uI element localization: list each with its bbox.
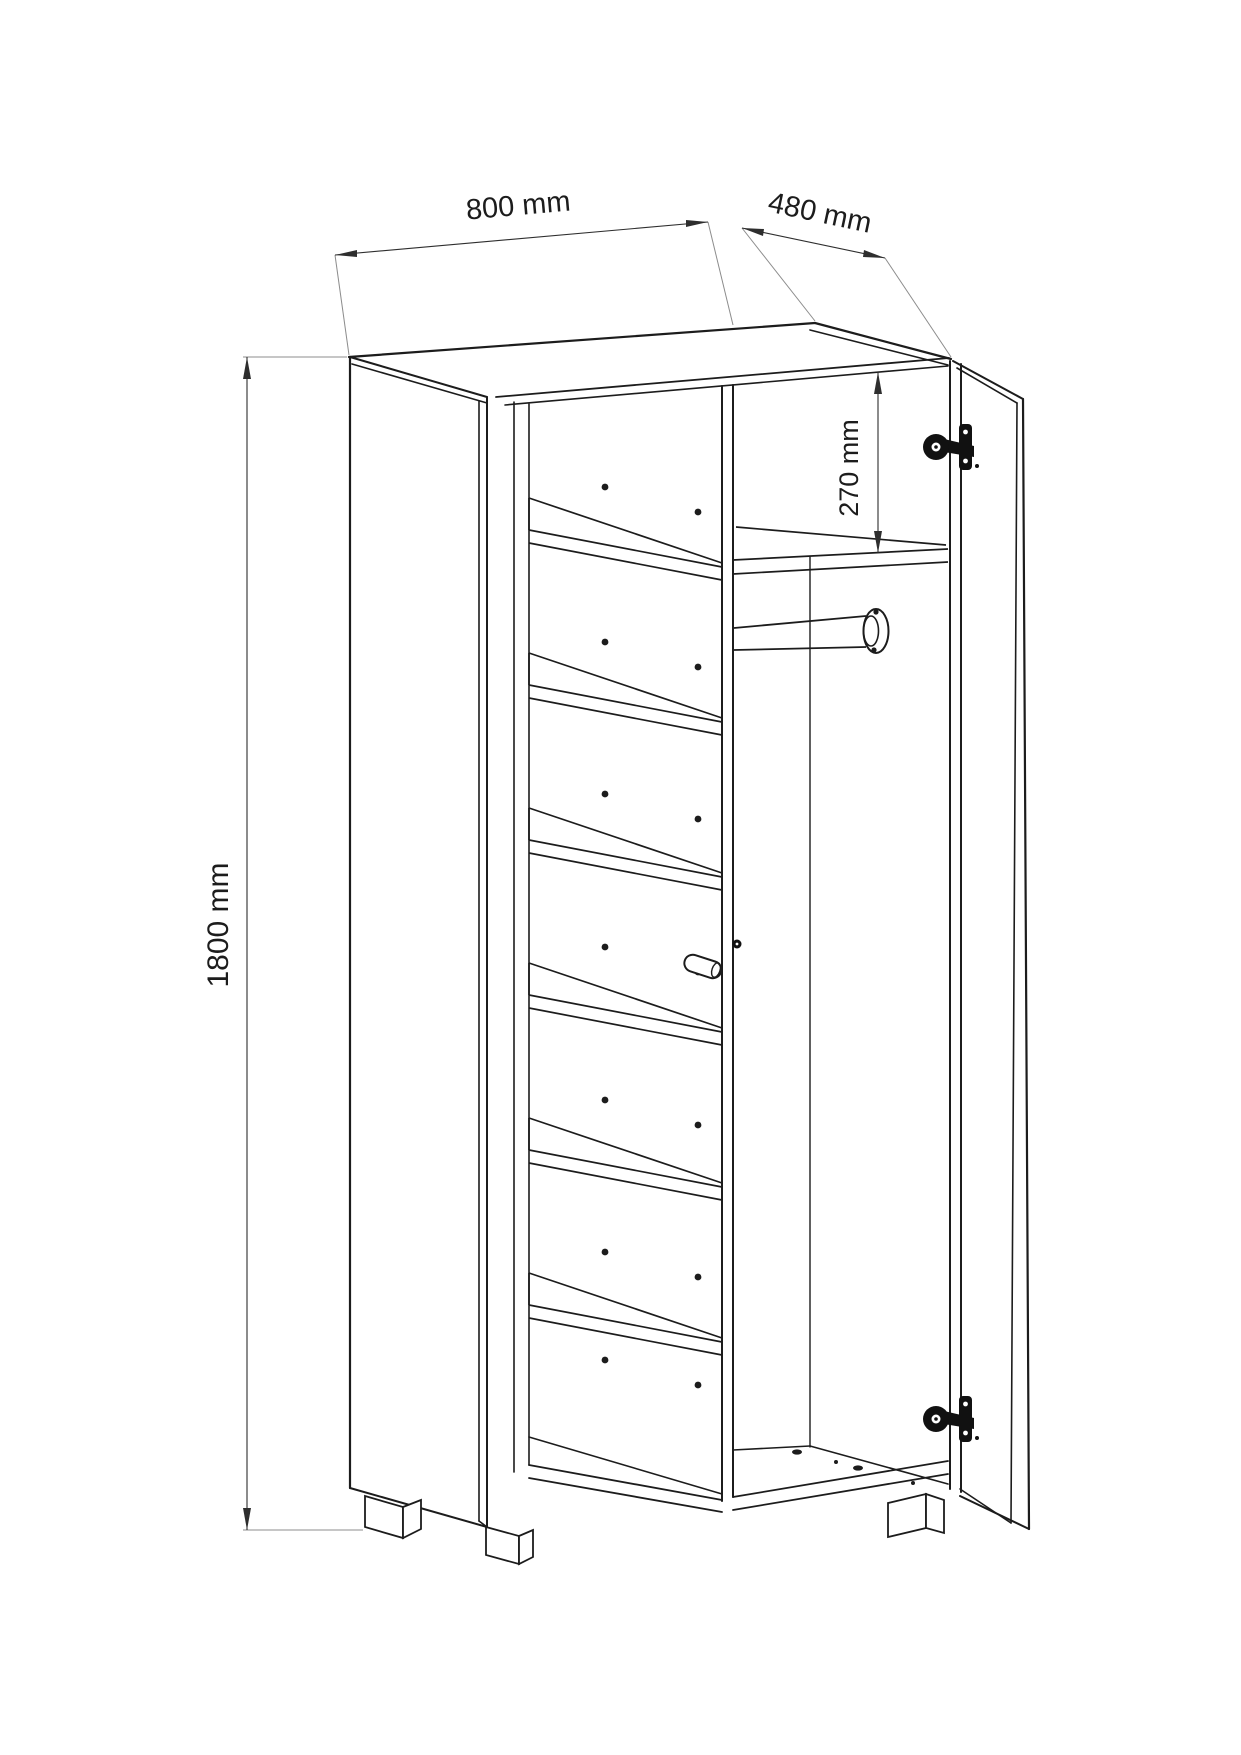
- dimension-top-compartment-label: 270 mm: [834, 419, 864, 517]
- floor-fittings: [792, 1449, 915, 1485]
- clothes-rail: [734, 609, 889, 653]
- foot: [486, 1527, 533, 1564]
- dimension-depth: 480 mm: [742, 187, 885, 258]
- dimension-width-label: 800 mm: [465, 186, 572, 227]
- dimension-height-label: 1800 mm: [202, 862, 235, 987]
- shelf: [529, 1273, 722, 1355]
- right-door: [953, 361, 1029, 1529]
- technical-drawing-page: 800 mm 480 mm 1800 mm 270 mm: [0, 0, 1241, 1755]
- carcass: [349, 323, 961, 1512]
- shelf: [529, 808, 722, 890]
- shelves-left: [529, 498, 722, 1355]
- top-panel-back-edge: [349, 323, 815, 357]
- shelf-pin-holes: [602, 484, 702, 1389]
- wardrobe-drawing: 800 mm 480 mm 1800 mm 270 mm: [0, 0, 1241, 1755]
- dimension-depth-label: 480 mm: [765, 187, 874, 240]
- rail-flange: [864, 609, 889, 653]
- shelf: [529, 653, 722, 735]
- shelf: [529, 498, 722, 580]
- shelf: [529, 1118, 722, 1200]
- top-panel-right-edge: [815, 323, 951, 359]
- dimension-width: 800 mm: [335, 186, 708, 257]
- foot: [365, 1496, 421, 1538]
- dimension-height: 1800 mm: [202, 357, 251, 1530]
- dimension-top-compartment: 270 mm: [834, 372, 882, 553]
- interior-ceiling-edge: [505, 366, 948, 405]
- bottom-panel: [529, 1437, 722, 1494]
- foot: [888, 1494, 944, 1537]
- feet: [365, 1494, 944, 1564]
- left-door: [350, 357, 487, 1527]
- shelf: [529, 963, 722, 1045]
- shelf-right-top: [733, 527, 948, 574]
